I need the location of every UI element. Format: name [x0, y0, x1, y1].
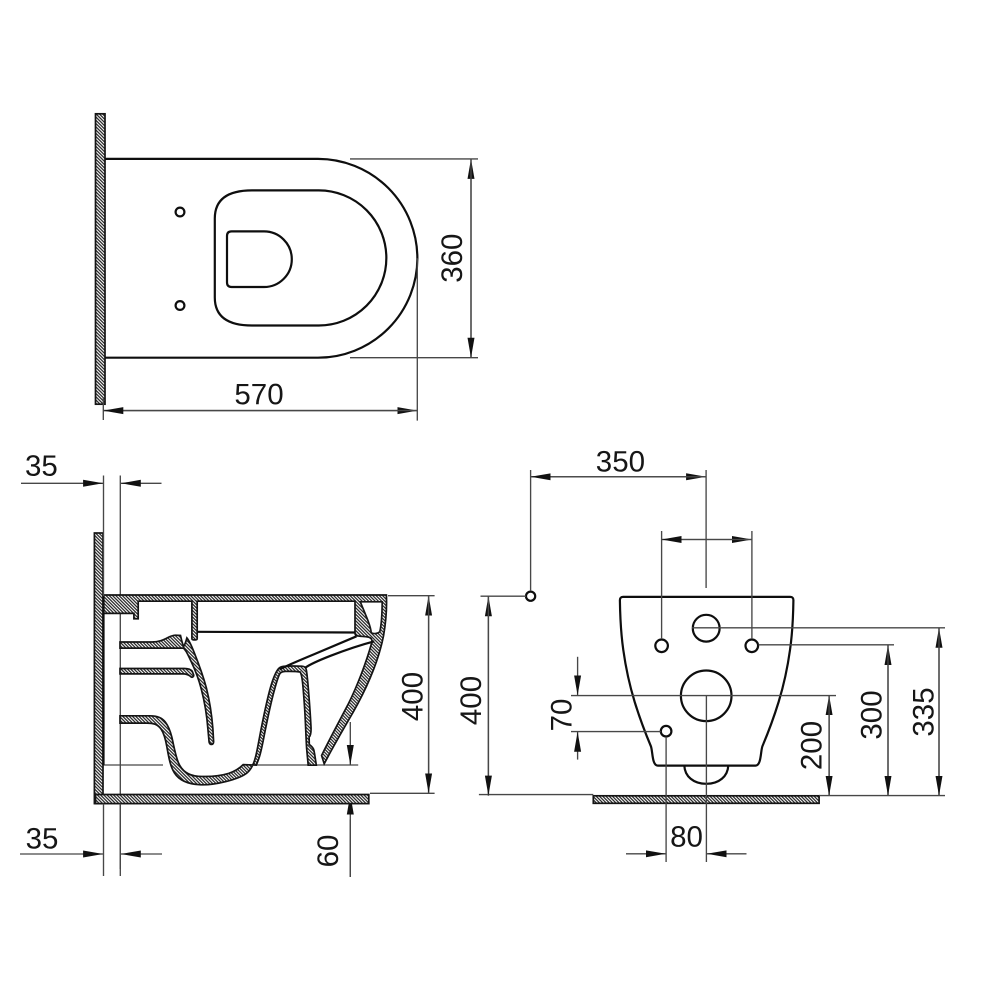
- svg-text:80: 80: [670, 821, 703, 854]
- svg-text:350: 350: [596, 445, 645, 478]
- svg-text:60: 60: [312, 835, 345, 868]
- svg-text:35: 35: [26, 822, 59, 855]
- svg-text:35: 35: [25, 450, 58, 483]
- svg-text:400: 400: [396, 672, 429, 721]
- svg-text:70: 70: [545, 699, 578, 732]
- svg-text:200: 200: [795, 721, 828, 770]
- svg-text:360: 360: [436, 234, 469, 283]
- svg-text:400: 400: [455, 676, 488, 725]
- svg-text:300: 300: [856, 690, 889, 739]
- svg-text:335: 335: [907, 687, 940, 736]
- svg-text:570: 570: [234, 378, 283, 411]
